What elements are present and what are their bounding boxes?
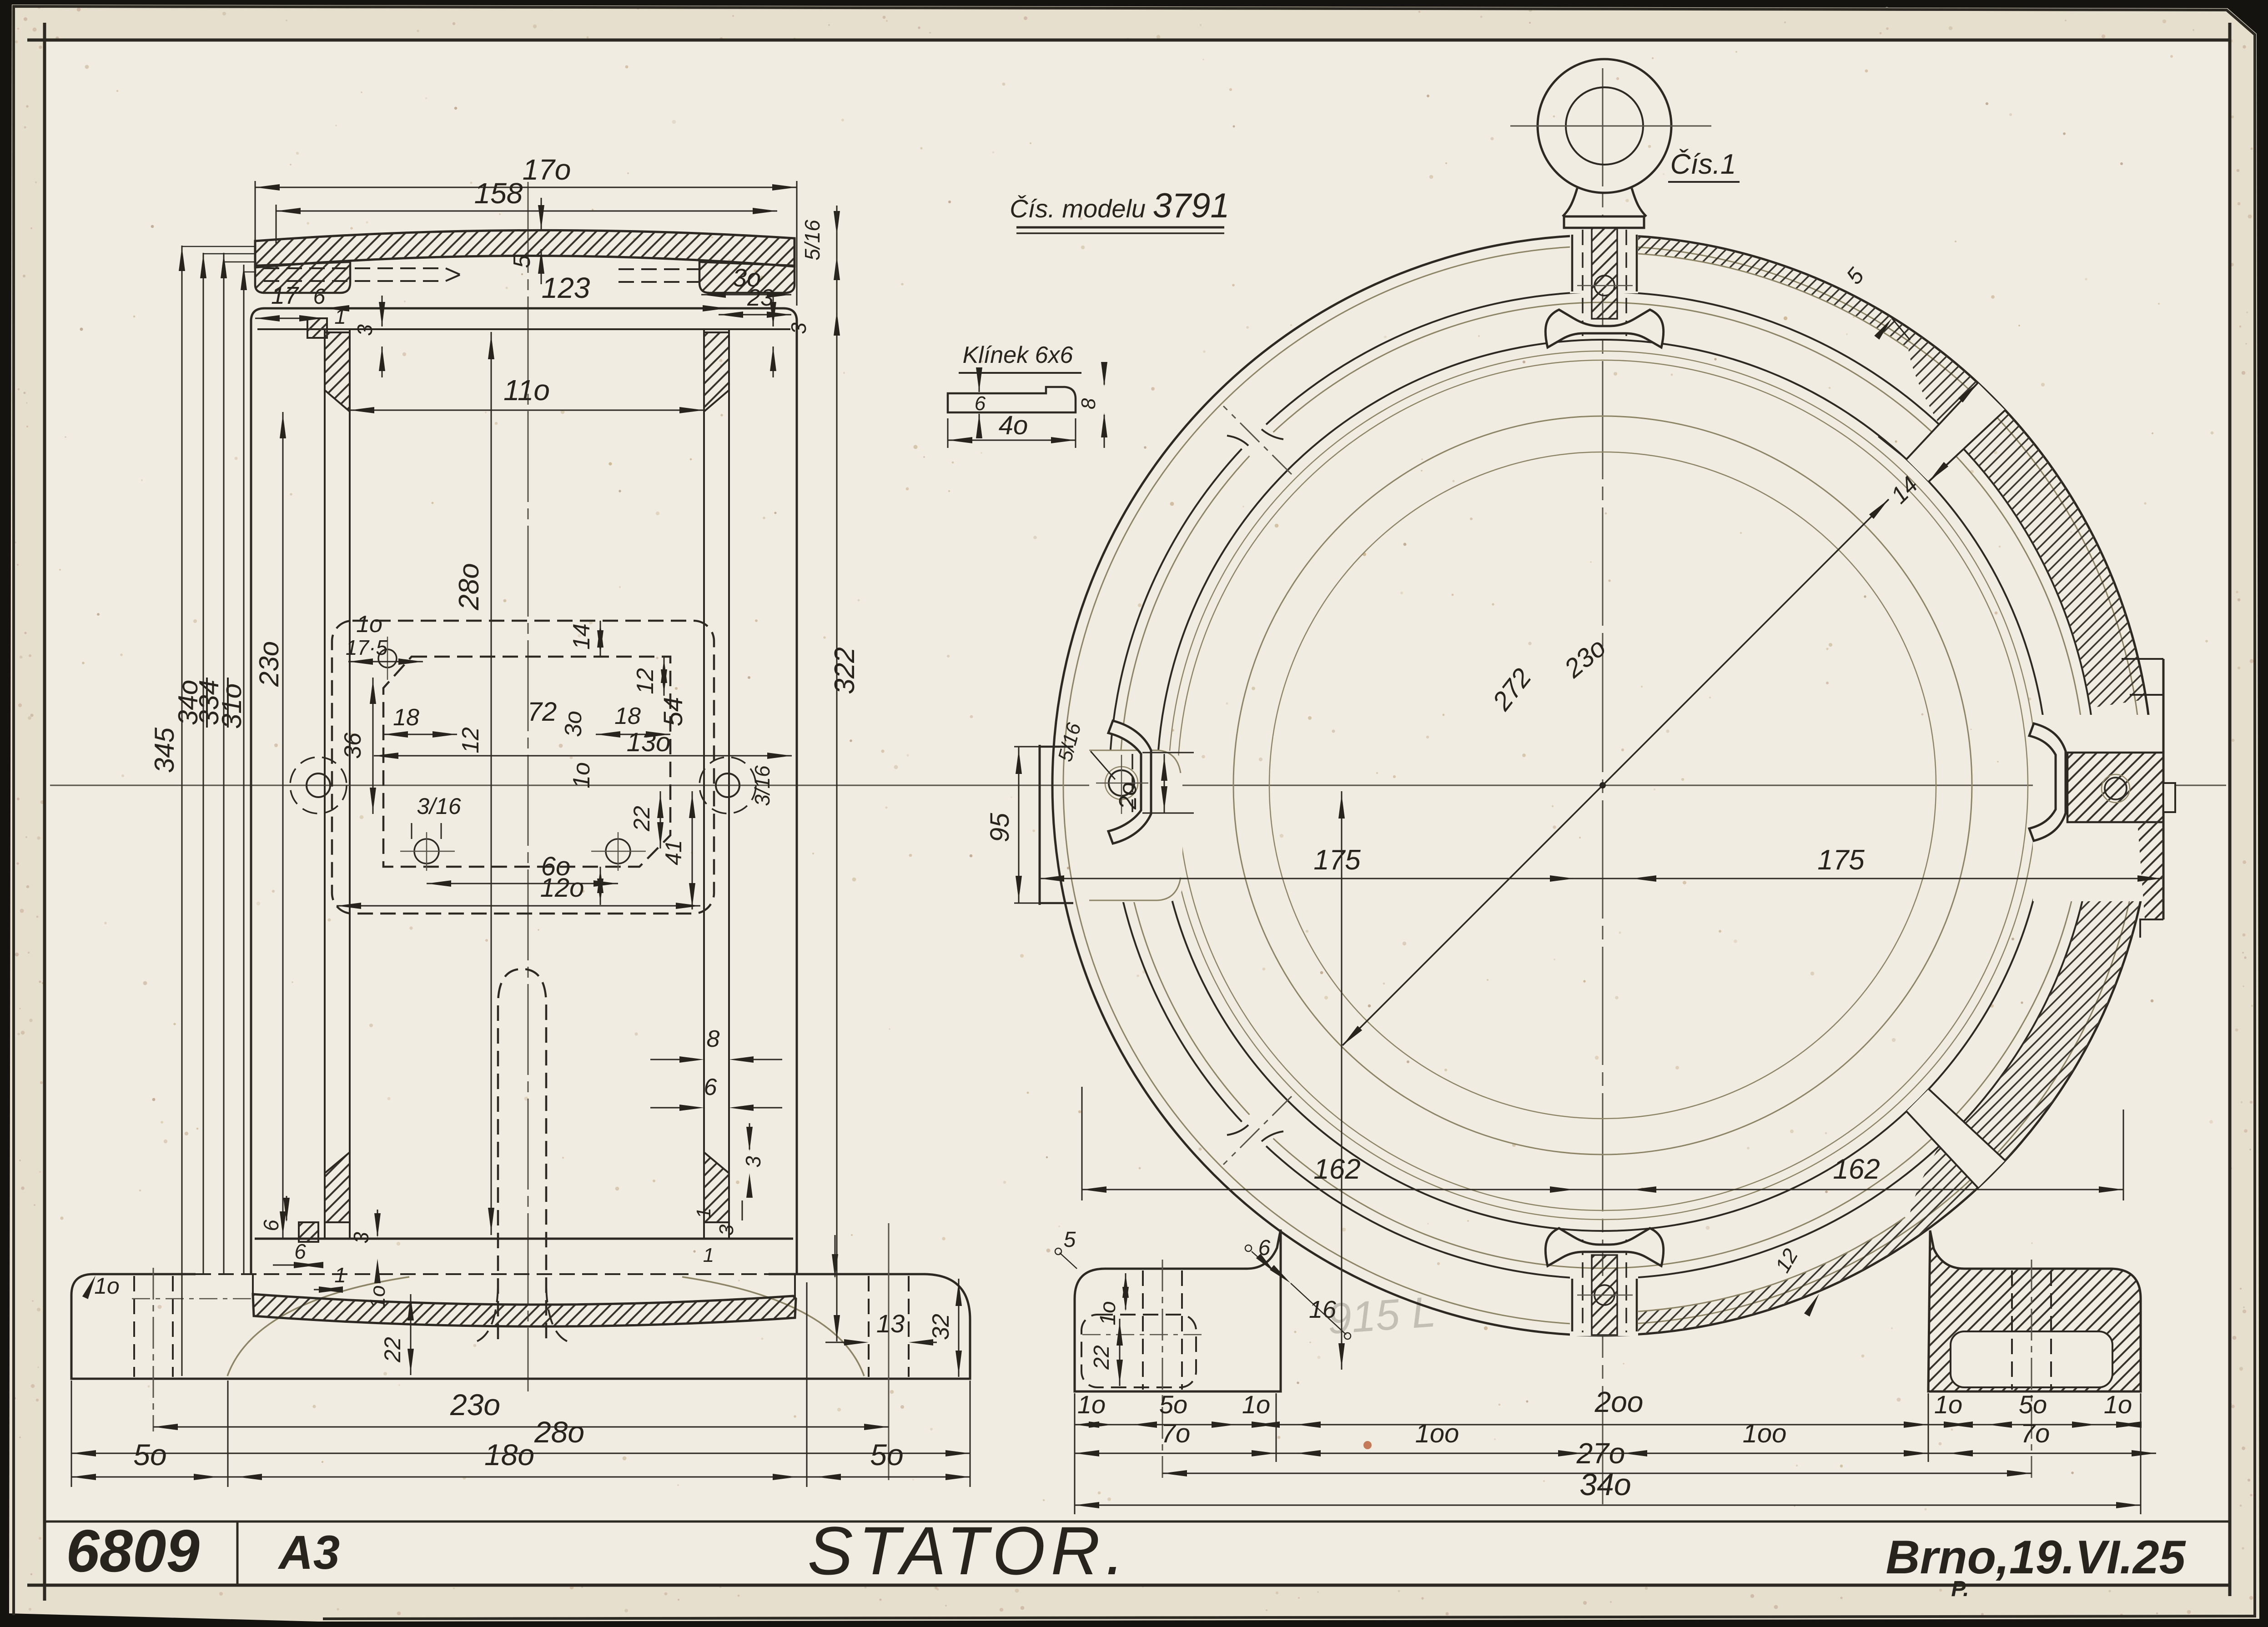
svg-text:162: 162 — [1313, 1154, 1360, 1185]
svg-text:8: 8 — [707, 1026, 720, 1052]
svg-text:36: 36 — [340, 733, 366, 759]
svg-text:1o: 1o — [1934, 1390, 1962, 1419]
svg-text:18o: 18o — [484, 1438, 534, 1471]
svg-text:Brno,19.VI.25: Brno,19.VI.25 — [1886, 1531, 2187, 1584]
svg-text:27o: 27o — [1576, 1437, 1625, 1470]
svg-text:A3: A3 — [277, 1526, 340, 1579]
svg-text:1o: 1o — [356, 611, 382, 638]
svg-text:23: 23 — [747, 285, 774, 311]
svg-text:23o: 23o — [450, 1388, 500, 1421]
svg-text:6: 6 — [294, 1240, 306, 1263]
svg-text:158: 158 — [474, 177, 523, 210]
svg-text:123: 123 — [542, 271, 590, 304]
svg-text:6809: 6809 — [66, 1517, 200, 1584]
svg-text:5: 5 — [509, 254, 535, 268]
svg-text:6: 6 — [259, 1220, 283, 1231]
svg-text:2o: 2o — [1114, 782, 1142, 810]
svg-text:18: 18 — [614, 703, 641, 729]
svg-text:2oo: 2oo — [1594, 1386, 1644, 1418]
svg-text:915 L: 915 L — [1326, 1288, 1437, 1343]
svg-text:1o: 1o — [366, 1285, 389, 1308]
svg-text:8: 8 — [1077, 398, 1100, 409]
svg-text:17: 17 — [271, 282, 299, 309]
svg-text:13o: 13o — [627, 728, 671, 757]
svg-text:3/16: 3/16 — [750, 765, 774, 806]
svg-text:5o: 5o — [133, 1438, 166, 1471]
svg-text:12: 12 — [458, 727, 484, 753]
svg-text:1o: 1o — [94, 1273, 120, 1299]
svg-text:12o: 12o — [540, 873, 584, 903]
svg-text:22: 22 — [1090, 1345, 1114, 1370]
svg-text:6: 6 — [313, 285, 326, 309]
svg-text:1o: 1o — [568, 762, 595, 788]
svg-text:17·5: 17·5 — [346, 636, 387, 659]
svg-text:1o: 1o — [1077, 1390, 1106, 1419]
svg-text:P.: P. — [1951, 1577, 1969, 1601]
svg-text:3: 3 — [353, 324, 377, 336]
svg-text:95: 95 — [985, 813, 1015, 842]
svg-text:22: 22 — [629, 806, 654, 832]
svg-text:12: 12 — [632, 668, 659, 694]
svg-text:14: 14 — [568, 623, 595, 650]
svg-text:5o: 5o — [870, 1438, 903, 1471]
svg-text:6: 6 — [704, 1074, 717, 1100]
svg-text:18: 18 — [393, 704, 419, 731]
svg-text:5o: 5o — [1159, 1390, 1187, 1419]
svg-text:5/16: 5/16 — [800, 220, 824, 261]
svg-text:32: 32 — [928, 1314, 954, 1340]
svg-text:3: 3 — [741, 1156, 765, 1168]
svg-text:11o: 11o — [503, 374, 550, 407]
svg-text:5o: 5o — [2019, 1390, 2047, 1419]
svg-text:5: 5 — [1064, 1228, 1076, 1252]
svg-text:STATOR.: STATOR. — [807, 1512, 1130, 1589]
svg-text:1oo: 1oo — [1415, 1419, 1459, 1448]
svg-text:Klínek 6x6: Klínek 6x6 — [963, 342, 1073, 368]
svg-text:1: 1 — [334, 305, 346, 328]
svg-text:17o: 17o — [523, 153, 571, 186]
svg-text:16: 16 — [1309, 1296, 1337, 1323]
svg-text:1o: 1o — [1242, 1390, 1270, 1419]
svg-text:1oo: 1oo — [1743, 1419, 1787, 1448]
svg-text:1o: 1o — [2104, 1390, 2132, 1419]
svg-text:72: 72 — [528, 697, 557, 727]
svg-text:4o: 4o — [999, 411, 1028, 440]
svg-text:Čís.1: Čís.1 — [1670, 149, 1736, 180]
svg-text:22: 22 — [380, 1337, 405, 1363]
svg-text:31o: 31o — [216, 683, 247, 729]
svg-text:1: 1 — [703, 1244, 714, 1266]
svg-text:3: 3 — [715, 1224, 738, 1235]
svg-text:345: 345 — [149, 727, 180, 773]
svg-text:3: 3 — [787, 322, 810, 334]
svg-text:1: 1 — [334, 1263, 346, 1287]
svg-text:1o: 1o — [1096, 1301, 1120, 1325]
svg-text:23o: 23o — [254, 641, 284, 687]
svg-text:28o: 28o — [534, 1415, 584, 1449]
svg-text:162: 162 — [1833, 1154, 1880, 1185]
svg-text:3: 3 — [349, 1232, 373, 1244]
svg-text:322: 322 — [829, 647, 860, 694]
svg-text:3/16: 3/16 — [417, 793, 461, 819]
svg-text:28o: 28o — [453, 563, 485, 610]
svg-text:6: 6 — [975, 392, 986, 415]
svg-text:41: 41 — [661, 840, 686, 865]
svg-text:7o: 7o — [1161, 1419, 1191, 1448]
svg-text:1: 1 — [693, 1208, 715, 1219]
svg-text:3o: 3o — [560, 711, 587, 737]
svg-text:13: 13 — [876, 1309, 905, 1338]
svg-text:34o: 34o — [1579, 1467, 1631, 1502]
svg-text:175: 175 — [1817, 844, 1865, 876]
svg-text:7o: 7o — [2021, 1419, 2050, 1448]
svg-text:175: 175 — [1313, 844, 1361, 876]
svg-text:54: 54 — [659, 697, 688, 727]
